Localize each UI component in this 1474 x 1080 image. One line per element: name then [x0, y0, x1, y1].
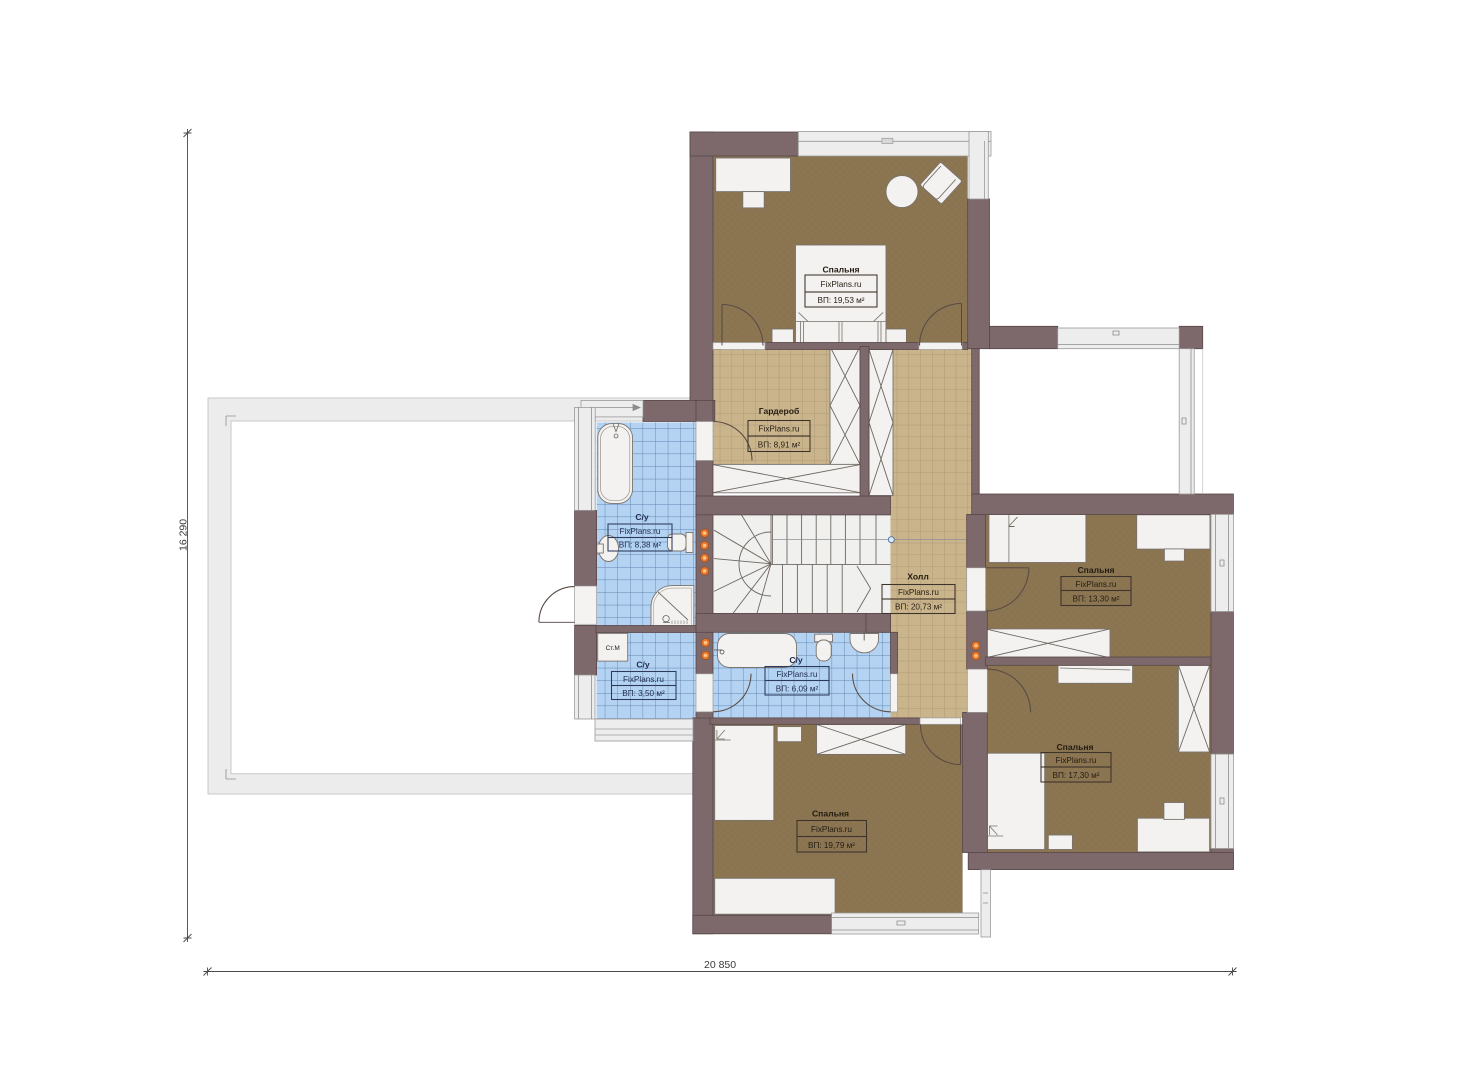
- svg-text:ВП: 19,53 м²: ВП: 19,53 м²: [817, 296, 864, 305]
- svg-text:FixPlans.ru: FixPlans.ru: [777, 670, 818, 679]
- svg-text:FixPlans.ru: FixPlans.ru: [821, 280, 862, 289]
- svg-text:20 850: 20 850: [704, 959, 736, 971]
- svg-text:16 290: 16 290: [178, 519, 190, 551]
- svg-text:FixPlans.ru: FixPlans.ru: [620, 527, 661, 536]
- svg-text:С/у: С/у: [635, 512, 649, 522]
- svg-text:С/у: С/у: [789, 655, 803, 665]
- svg-text:FixPlans.ru: FixPlans.ru: [1076, 580, 1117, 589]
- svg-text:FixPlans.ru: FixPlans.ru: [623, 675, 664, 684]
- svg-text:Спальня: Спальня: [822, 265, 859, 275]
- svg-text:FixPlans.ru: FixPlans.ru: [898, 588, 939, 597]
- svg-text:С/у: С/у: [636, 660, 650, 670]
- svg-text:Спальня: Спальня: [812, 809, 849, 819]
- svg-text:FixPlans.ru: FixPlans.ru: [1056, 756, 1097, 765]
- svg-text:FixPlans.ru: FixPlans.ru: [759, 425, 800, 434]
- svg-text:Спальня: Спальня: [1056, 742, 1093, 752]
- svg-text:ВП: 20,73 м²: ВП: 20,73 м²: [895, 603, 942, 612]
- svg-text:Гардероб: Гардероб: [759, 406, 800, 416]
- svg-text:ВП: 8,91 м²: ВП: 8,91 м²: [758, 441, 801, 450]
- svg-text:ВП: 8,38 м²: ВП: 8,38 м²: [619, 541, 662, 550]
- svg-text:Ст.М: Ст.М: [606, 645, 620, 652]
- svg-text:ВП: 17,30 м²: ВП: 17,30 м²: [1052, 771, 1099, 780]
- svg-text:Спальня: Спальня: [1077, 565, 1114, 575]
- svg-text:ВП: 13,30 м²: ВП: 13,30 м²: [1072, 595, 1119, 604]
- svg-text:ВП: 6,09 м²: ВП: 6,09 м²: [776, 685, 819, 694]
- svg-text:ВП: 3,50 м²: ВП: 3,50 м²: [622, 689, 665, 698]
- svg-text:FixPlans.ru: FixPlans.ru: [811, 825, 852, 834]
- svg-text:Холл: Холл: [907, 572, 929, 582]
- svg-text:ВП: 19,79 м²: ВП: 19,79 м²: [808, 841, 855, 850]
